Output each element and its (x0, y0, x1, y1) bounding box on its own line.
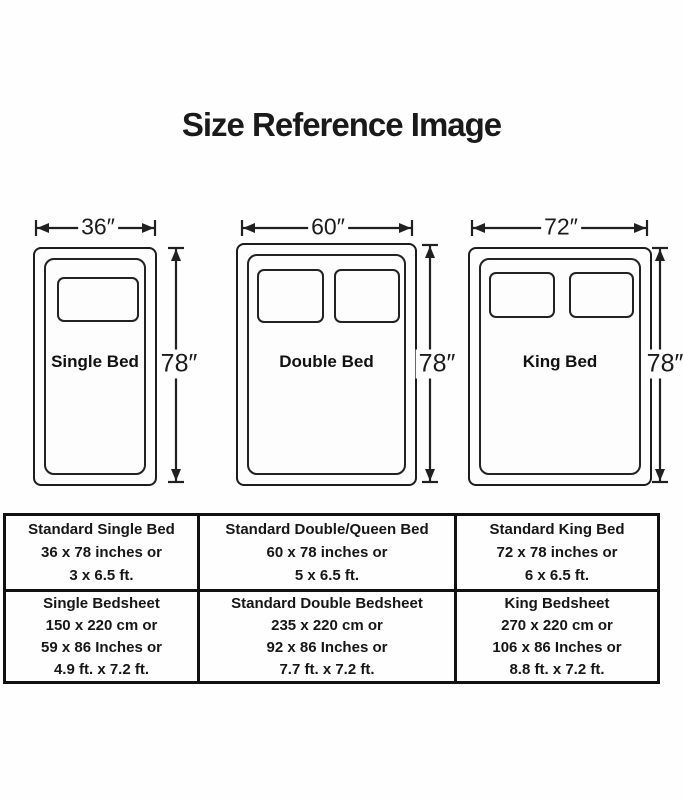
king-bed-label: King Bed (470, 352, 650, 372)
pillow-icon (489, 272, 555, 318)
cell-line: Standard King Bed (489, 518, 624, 541)
cell-line: 6 x 6.5 ft. (525, 564, 589, 587)
cell-line: 106 x 86 Inches or (492, 637, 621, 659)
width-dimension-label-single: 36″ (78, 214, 118, 241)
width-dimension-label-double: 60″ (308, 214, 348, 241)
table-cell-standard-king-bed: Standard King Bed 72 x 78 inches or 6 x … (457, 516, 657, 589)
pillow-icon (257, 269, 324, 323)
height-dimension-label-king: 78″ (644, 350, 683, 379)
cell-line: 36 x 78 inches or (41, 541, 162, 564)
single-bed-diagram: Single Bed (33, 247, 157, 486)
size-table: Standard Single Bed 36 x 78 inches or 3 … (3, 513, 660, 684)
cell-line: Single Bedsheet (43, 593, 160, 615)
double-bed-label: Double Bed (238, 352, 415, 372)
cell-line: 235 x 220 cm or (271, 615, 383, 637)
single-bed-label: Single Bed (35, 352, 155, 372)
height-dimension-label-single: 78″ (158, 350, 201, 379)
table-cell-standard-double-bed: Standard Double/Queen Bed 60 x 78 inches… (200, 516, 457, 589)
double-bed-diagram: Double Bed (236, 243, 417, 486)
cell-line: 59 x 86 Inches or (41, 637, 162, 659)
table-cell-double-bedsheet: Standard Double Bedsheet 235 x 220 cm or… (200, 592, 457, 681)
page-title: Size Reference Image (0, 106, 683, 144)
cell-line: Standard Double/Queen Bed (225, 518, 428, 541)
cell-line: 8.8 ft. x 7.2 ft. (509, 659, 604, 681)
table-cell-single-bedsheet: Single Bedsheet 150 x 220 cm or 59 x 86 … (6, 592, 200, 681)
size-reference-page: Size Reference Image (0, 0, 683, 800)
cell-line: 72 x 78 inches or (497, 541, 618, 564)
cell-line: King Bedsheet (504, 593, 609, 615)
cell-line: 7.7 ft. x 7.2 ft. (279, 659, 374, 681)
pillow-icon (57, 277, 139, 322)
cell-line: 92 x 86 Inches or (267, 637, 388, 659)
table-row-bedsheets: Single Bedsheet 150 x 220 cm or 59 x 86 … (6, 592, 657, 681)
cell-line: 4.9 ft. x 7.2 ft. (54, 659, 149, 681)
cell-line: Standard Double Bedsheet (231, 593, 423, 615)
height-dimension-label-double: 78″ (416, 350, 459, 379)
king-bed-diagram: King Bed (468, 247, 652, 486)
cell-line: 270 x 220 cm or (501, 615, 613, 637)
cell-line: 3 x 6.5 ft. (69, 564, 133, 587)
table-cell-king-bedsheet: King Bedsheet 270 x 220 cm or 106 x 86 I… (457, 592, 657, 681)
cell-line: 150 x 220 cm or (46, 615, 158, 637)
table-cell-standard-single-bed: Standard Single Bed 36 x 78 inches or 3 … (6, 516, 200, 589)
cell-line: 60 x 78 inches or (267, 541, 388, 564)
width-dimension-label-king: 72″ (541, 214, 581, 241)
pillow-icon (334, 269, 400, 323)
cell-line: 5 x 6.5 ft. (295, 564, 359, 587)
cell-line: Standard Single Bed (28, 518, 175, 541)
pillow-icon (569, 272, 634, 318)
table-row-beds: Standard Single Bed 36 x 78 inches or 3 … (6, 516, 657, 592)
